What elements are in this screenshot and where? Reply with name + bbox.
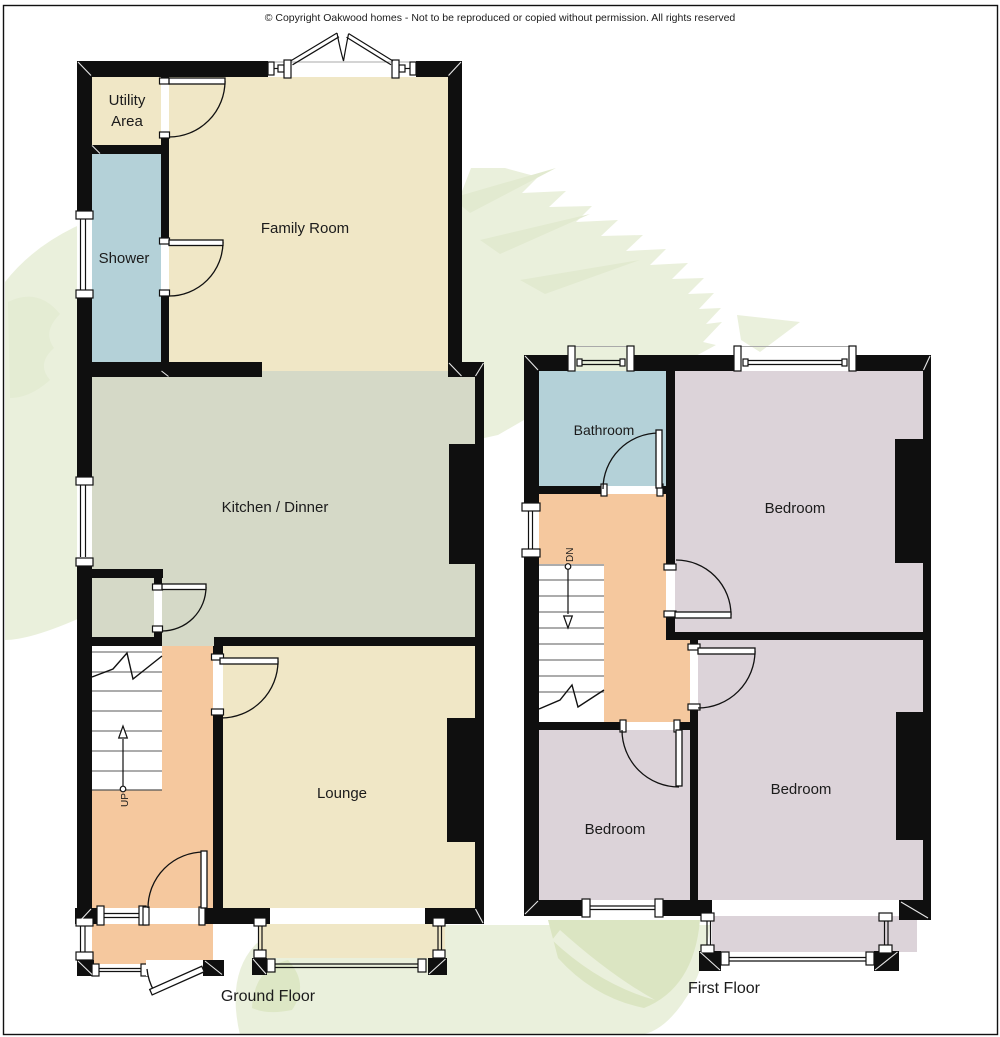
svg-text:Bathroom: Bathroom (574, 422, 635, 438)
svg-text:Ground Floor: Ground Floor (221, 988, 316, 1005)
svg-text:First Floor: First Floor (688, 980, 761, 997)
svg-text:UP: UP (120, 793, 131, 807)
svg-text:Shower: Shower (99, 250, 150, 267)
svg-text:Lounge: Lounge (317, 785, 367, 802)
svg-text:DN: DN (565, 548, 576, 562)
svg-text:Bedroom: Bedroom (765, 500, 826, 517)
svg-text:Area: Area (111, 113, 143, 130)
svg-text:Bedroom: Bedroom (585, 821, 646, 838)
svg-text:© Copyright Oakwood homes - No: © Copyright Oakwood homes - Not to be re… (265, 12, 736, 24)
svg-text:Kitchen / Dinner: Kitchen / Dinner (222, 499, 329, 516)
svg-text:Bedroom: Bedroom (771, 781, 832, 798)
svg-text:Family Room: Family Room (261, 220, 349, 237)
svg-text:Utility: Utility (109, 92, 146, 109)
